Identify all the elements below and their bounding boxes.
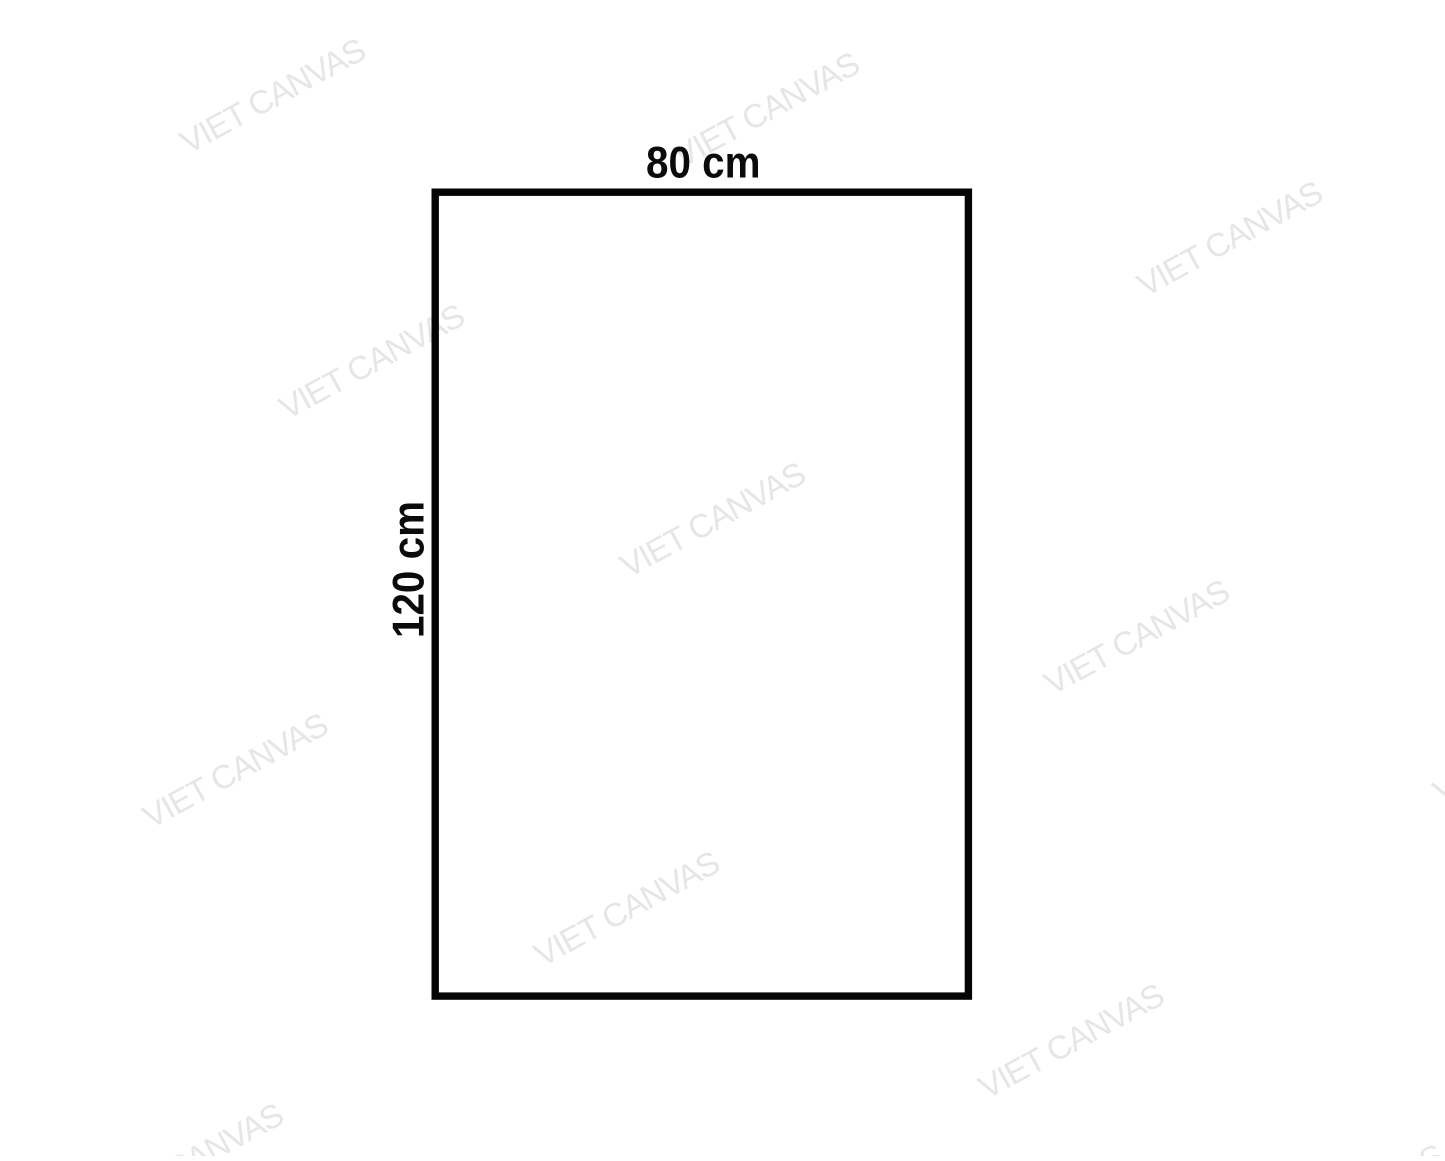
svg-text:80 cm: 80 cm [646,139,761,188]
svg-text:120 cm: 120 cm [384,501,433,638]
